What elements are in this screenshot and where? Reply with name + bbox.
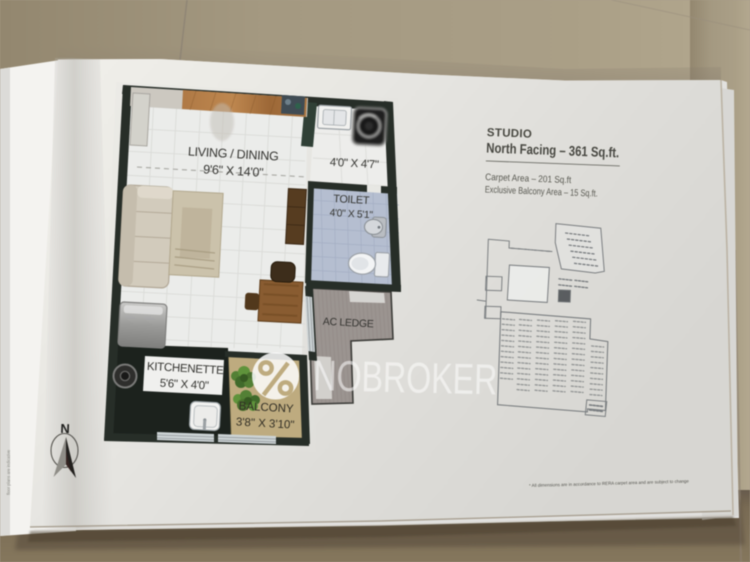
- svg-text:floor plans are indicative: floor plans are indicative: [6, 449, 11, 495]
- svg-text:TOILET: TOILET: [333, 193, 370, 207]
- svg-text:NOBROKER: NOBROKER: [313, 352, 498, 404]
- svg-text:STUDIO: STUDIO: [487, 127, 533, 141]
